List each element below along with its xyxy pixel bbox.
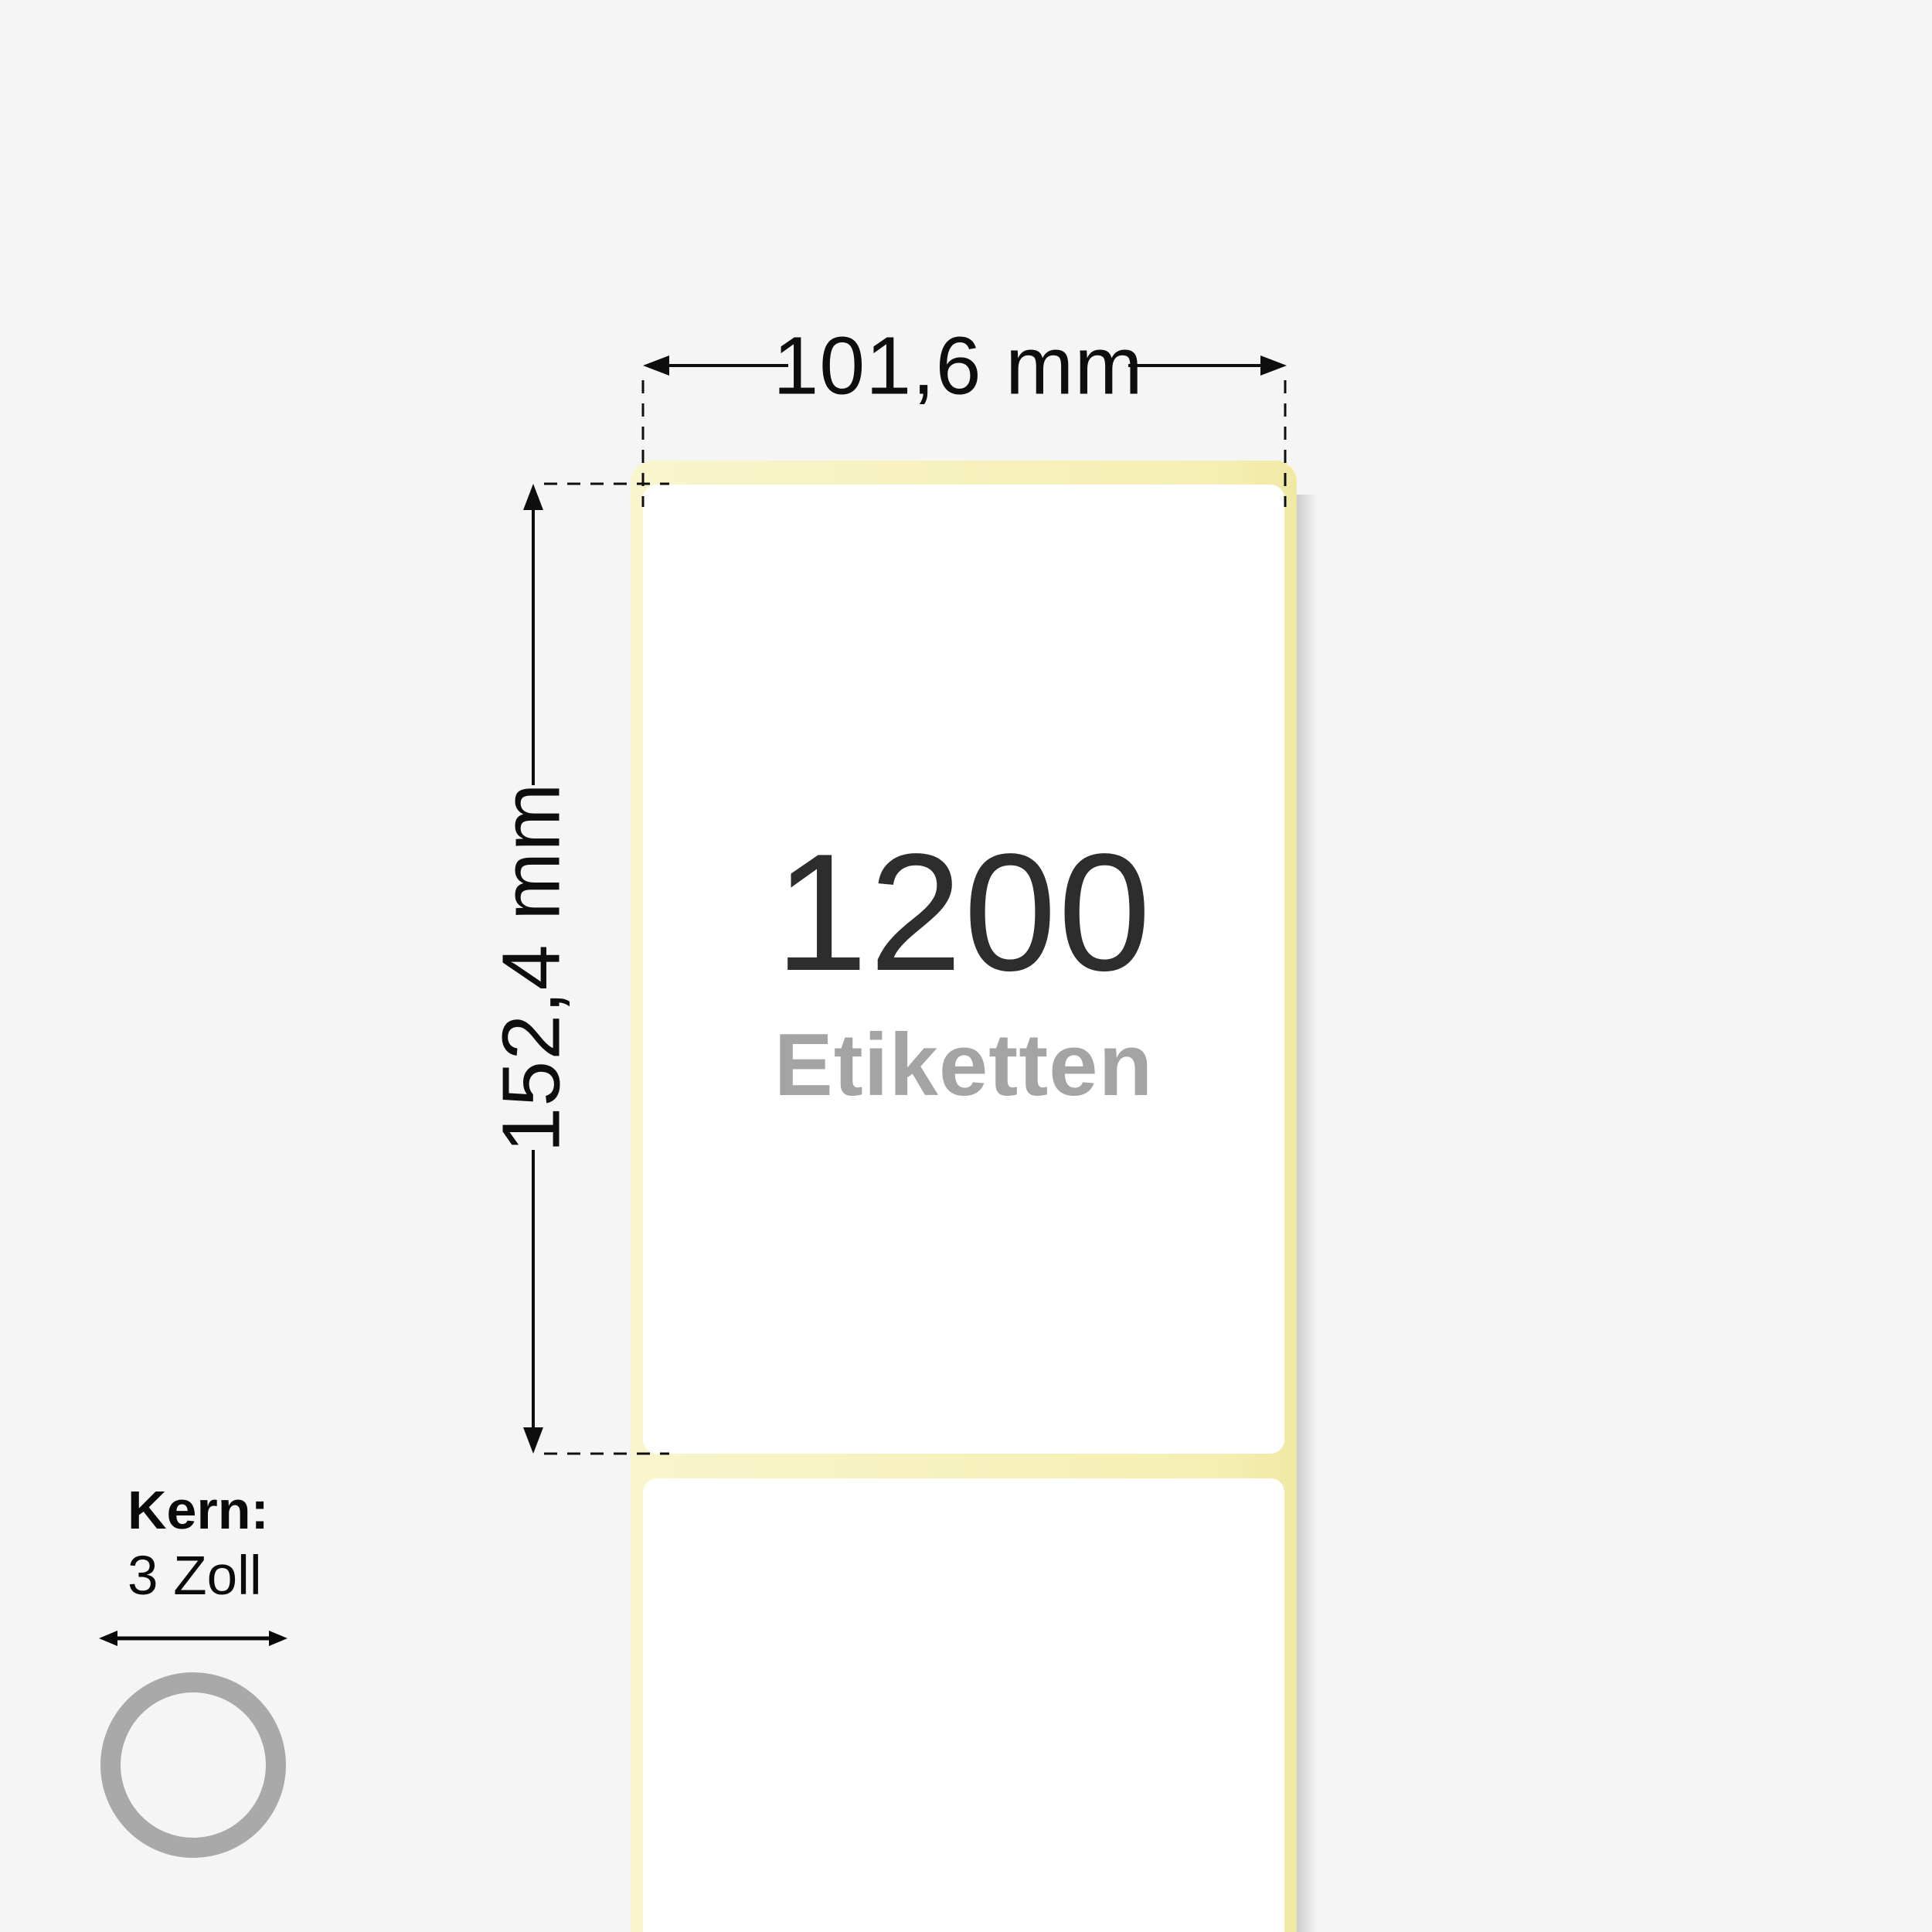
core-size: 3 Zoll <box>128 1543 269 1611</box>
core-diameter-arrow <box>99 1631 287 1646</box>
product-diagram-canvas: 1200 Etiketten <box>0 0 1932 1932</box>
core-info-block: Kern: 3 Zoll <box>128 1478 269 1611</box>
width-dim-arrow-left-icon <box>643 355 669 376</box>
width-dim-arrow-right-icon <box>1260 355 1287 376</box>
label-blank-first: 1200 Etiketten <box>643 485 1284 1454</box>
height-dim-arrow-down-icon <box>523 1427 543 1454</box>
label-count-caption: Etiketten <box>774 1022 1153 1110</box>
core-ring-icon <box>100 1672 286 1858</box>
core-title: Kern: <box>128 1478 269 1543</box>
label-count: 1200 <box>775 828 1153 995</box>
core-arrow-right-icon <box>269 1631 287 1646</box>
width-dimension-label: 101,6 mm <box>773 320 1143 413</box>
label-blank-second <box>643 1478 1284 1932</box>
core-arrow-left-icon <box>99 1631 117 1646</box>
label-roll-strip: 1200 Etiketten <box>630 461 1297 1932</box>
height-dim-arrow-up-icon <box>523 484 543 510</box>
height-dimension-label: 152,4 mm <box>485 782 579 1152</box>
strip-right-shadow <box>1297 495 1317 1932</box>
